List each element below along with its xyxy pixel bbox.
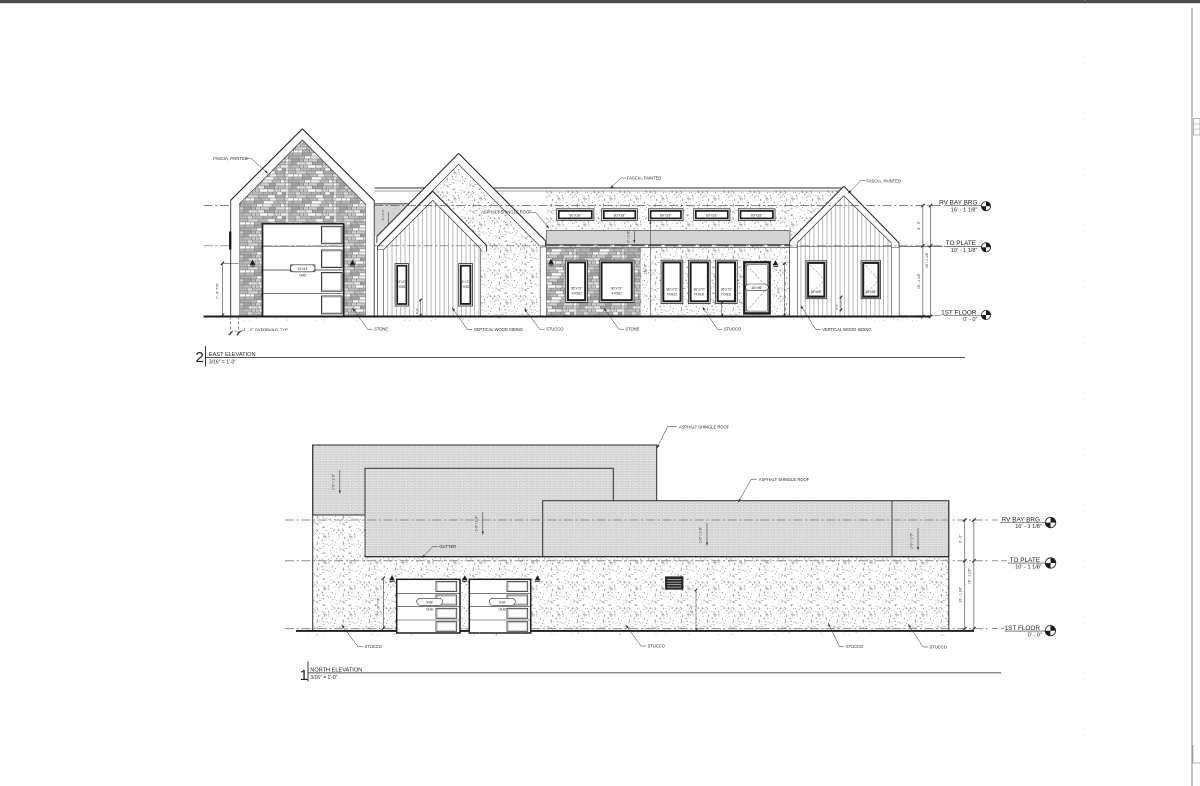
- svg-text:FIXED: FIXED: [397, 285, 408, 289]
- svg-text:3/16" = 1'-0": 3/16" = 1'-0": [310, 675, 337, 681]
- svg-text:10' - 1 1/8": 10' - 1 1/8": [959, 586, 963, 603]
- svg-text:3/16" = 1'-0": 3/16" = 1'-0": [209, 360, 236, 366]
- svg-text:OHD: OHD: [499, 607, 507, 611]
- svg-text:36"x72": 36"x72": [721, 288, 733, 292]
- svg-text:FASCIA, PAINTED: FASCIA, PAINTED: [627, 176, 661, 181]
- svg-text:9'x8': 9'x8': [426, 600, 433, 604]
- svg-text:1'-0" / 1'-0": 1'-0" / 1'-0": [475, 515, 479, 532]
- svg-text:STONE: STONE: [625, 327, 639, 332]
- svg-text:60"x18": 60"x18": [751, 214, 763, 218]
- svg-text:60"x72": 60"x72": [611, 286, 623, 290]
- svg-text:STUCCO: STUCCO: [365, 644, 382, 649]
- svg-text:STUCCO: STUCCO: [724, 327, 741, 332]
- svg-text:16' - 1 1/8": 16' - 1 1/8": [1015, 524, 1042, 530]
- svg-text:36"x72": 36"x72": [571, 286, 583, 290]
- svg-text:36"x66": 36"x66": [865, 290, 877, 294]
- svg-text:16' - 1 1/8": 16' - 1 1/8": [968, 567, 972, 584]
- svg-text:5'-0": 5'-0": [415, 308, 419, 314]
- svg-text:CASEMENT: CASEMENT: [862, 295, 880, 299]
- svg-text:0' - 0": 0' - 0": [1028, 633, 1042, 639]
- svg-text:FIXED: FIXED: [667, 293, 678, 297]
- svg-text:STUCCO: STUCCO: [648, 644, 665, 649]
- svg-text:16' - 0": 16' - 0": [644, 263, 648, 274]
- svg-text:STUCCO: STUCCO: [546, 327, 563, 332]
- svg-text:9'-0": 9'-0": [777, 287, 781, 293]
- svg-text:CASEMENT: CASEMENT: [807, 295, 825, 299]
- svg-text:ASPHALT SHINGLE ROOF: ASPHALT SHINGLE ROOF: [679, 424, 730, 429]
- svg-text:0' - 0": 0' - 0": [963, 317, 977, 323]
- svg-text:9'x8': 9'x8': [499, 600, 506, 604]
- svg-text:36"x66": 36"x66": [811, 290, 823, 294]
- svg-text:FIXED: FIXED: [721, 293, 732, 297]
- svg-text:OHD: OHD: [426, 607, 434, 611]
- svg-text:6' - 0": 6' - 0": [917, 220, 921, 229]
- svg-text:ASPHALT SHINGLE ROOF: ASPHALT SHINGLE ROOF: [759, 477, 810, 482]
- svg-text:48"x96": 48"x96": [751, 286, 763, 290]
- svg-text:10' - 1 1/8": 10' - 1 1/8": [1015, 565, 1042, 571]
- svg-text:1'-0" / 1'-0": 1'-0" / 1'-0": [910, 532, 914, 549]
- svg-text:6' - 0": 6' - 0": [959, 534, 963, 543]
- svg-text:1'-0" / 1'-0": 1'-0" / 1'-0": [332, 473, 336, 490]
- svg-text:12'x14': 12'x14': [298, 267, 309, 271]
- svg-text:36"x72": 36"x72": [693, 288, 705, 292]
- svg-text:3' / 1'-0": 3' / 1'-0": [381, 209, 385, 220]
- svg-text:60"x18": 60"x18": [660, 214, 672, 218]
- svg-text:1: 1: [300, 667, 308, 684]
- svg-text:1' - 2" OVERBUILD, TYP: 1' - 2" OVERBUILD, TYP: [244, 327, 289, 332]
- svg-text:24"x72": 24"x72": [460, 280, 472, 284]
- svg-text:7' - 6" TYP: 7' - 6" TYP: [216, 283, 220, 299]
- svg-text:OHD: OHD: [299, 274, 307, 278]
- svg-text:60"x18": 60"x18": [614, 214, 626, 218]
- svg-text:36"x72": 36"x72": [666, 288, 678, 292]
- svg-text:VERTICAL WOOD SIDING: VERTICAL WOOD SIDING: [822, 327, 871, 332]
- svg-text:VERTICAL WOOD SIDING: VERTICAL WOOD SIDING: [474, 327, 523, 332]
- svg-text:STONE: STONE: [374, 327, 388, 332]
- svg-text:STUCCO: STUCCO: [846, 644, 863, 649]
- svg-text:16' - 1 1/8": 16' - 1 1/8": [951, 207, 978, 213]
- svg-text:FIXED: FIXED: [461, 285, 472, 289]
- svg-text:4' - 0": 4' - 0": [689, 604, 693, 613]
- svg-text:7' - 6" TYP: 7' - 6" TYP: [377, 597, 381, 613]
- svg-text:STUCCO: STUCCO: [930, 645, 947, 650]
- svg-text:ASPHALT SHINGLE ROOF: ASPHALT SHINGLE ROOF: [481, 210, 532, 215]
- svg-text:FASCIA, PAINTED: FASCIA, PAINTED: [213, 156, 247, 161]
- svg-text:3" / 1'-0": 3" / 1'-0": [627, 230, 631, 243]
- svg-text:2'-6": 2'-6": [835, 304, 839, 310]
- svg-text:GUTTER: GUTTER: [439, 544, 456, 549]
- svg-text:FIXED: FIXED: [612, 292, 623, 296]
- svg-text:2: 2: [196, 349, 204, 366]
- svg-text:60"x18": 60"x18": [706, 214, 718, 218]
- svg-text:FIXED: FIXED: [694, 293, 705, 297]
- svg-text:1'-0" / 1'-0": 1'-0" / 1'-0": [699, 526, 703, 543]
- svg-text:10' - 1 1/8": 10' - 1 1/8": [951, 248, 978, 254]
- svg-text:FASCIA, PAINTED: FASCIA, PAINTED: [867, 178, 901, 183]
- svg-text:24"x72": 24"x72": [396, 280, 408, 284]
- svg-text:FIXED: FIXED: [572, 292, 583, 296]
- svg-text:16' - 1 1/8": 16' - 1 1/8": [925, 251, 929, 268]
- svg-text:10' - 1 1/8": 10' - 1 1/8": [917, 272, 921, 289]
- svg-text:60"x18": 60"x18": [569, 214, 581, 218]
